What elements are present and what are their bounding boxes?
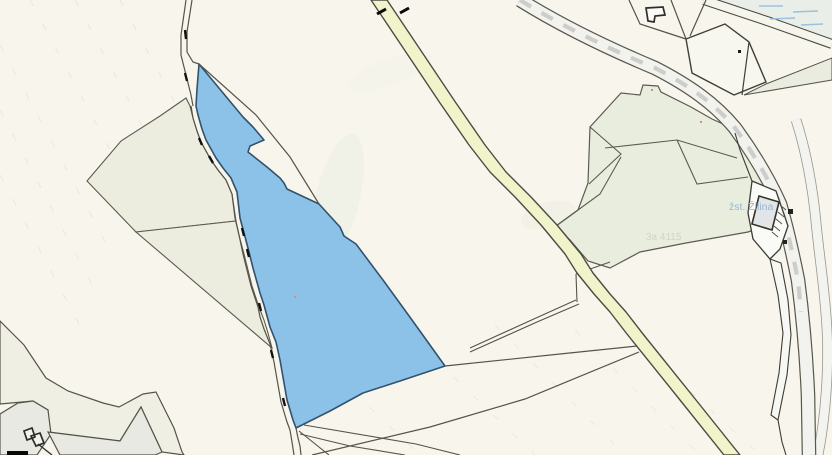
- svg-text:žst. Žilina: žst. Žilina: [729, 200, 774, 213]
- svg-text:3a 4115: 3a 4115: [646, 232, 682, 243]
